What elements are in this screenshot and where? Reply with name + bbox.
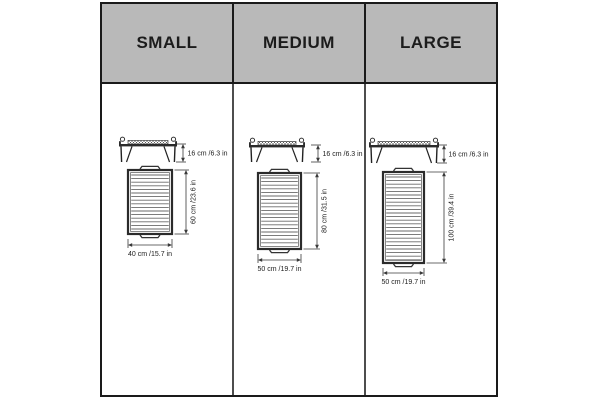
medium-grill-diagram: 16 cm /6.3 in80 cm /31.5 in50 cm /19.7 i…	[234, 84, 365, 395]
handle-bottom	[140, 235, 160, 238]
side-view	[369, 138, 439, 163]
width-dimension-label: 50 cm /19.7 in	[258, 266, 302, 273]
large-grill-diagram: 16 cm /6.3 in100 cm /39.4 in50 cm /19.7 …	[366, 84, 491, 395]
length-dimension: 80 cm /31.5 in	[304, 173, 329, 249]
length-dimension-label: 80 cm /31.5 in	[322, 189, 329, 233]
size-label-medium: MEDIUM	[263, 33, 335, 53]
top-view	[258, 169, 301, 252]
small-grill-diagram: 16 cm /6.3 in60 cm /23.6 in40 cm /15.7 i…	[102, 84, 233, 395]
height-dimension-label: 16 cm /6.3 in	[323, 151, 363, 158]
width-dimension-label: 40 cm /15.7 in	[128, 251, 172, 258]
size-table: SMALL MEDIUM LARGE 16 cm /6.3 in60 cm /2…	[100, 2, 498, 397]
header-cell-small: SMALL	[102, 4, 232, 82]
size-comparison-chart: SMALL MEDIUM LARGE 16 cm /6.3 in60 cm /2…	[0, 0, 600, 400]
height-dimension: 16 cm /6.3 in	[437, 145, 489, 163]
column-medium: 16 cm /6.3 in80 cm /31.5 in50 cm /19.7 i…	[232, 84, 364, 395]
size-label-small: SMALL	[136, 33, 197, 53]
header-cell-large: LARGE	[364, 4, 496, 82]
height-dimension-label: 16 cm /6.3 in	[188, 151, 228, 158]
header-cell-medium: MEDIUM	[232, 4, 364, 82]
side-view	[249, 138, 305, 162]
size-label-large: LARGE	[400, 33, 462, 53]
column-large: 16 cm /6.3 in100 cm /39.4 in50 cm /19.7 …	[364, 84, 496, 395]
top-view	[383, 168, 424, 266]
top-view	[128, 166, 172, 237]
width-dimension: 50 cm /19.7 in	[382, 268, 426, 286]
grate-mesh	[378, 141, 430, 145]
grate-mesh	[258, 141, 296, 145]
side-view	[119, 137, 177, 162]
height-dimension: 16 cm /6.3 in	[311, 145, 363, 162]
height-dimension: 16 cm /6.3 in	[176, 144, 228, 162]
height-dimension-label: 16 cm /6.3 in	[449, 152, 489, 159]
width-dimension: 50 cm /19.7 in	[258, 254, 302, 273]
length-dimension-label: 60 cm /23.6 in	[191, 180, 198, 224]
handle-bottom	[394, 264, 414, 267]
handle-bottom	[270, 250, 290, 253]
length-dimension: 100 cm /39.4 in	[427, 172, 456, 263]
column-small: 16 cm /6.3 in60 cm /23.6 in40 cm /15.7 i…	[102, 84, 232, 395]
length-dimension: 60 cm /23.6 in	[175, 170, 198, 234]
handle-top	[140, 166, 160, 169]
width-dimension-label: 50 cm /19.7 in	[382, 279, 426, 286]
table-header: SMALL MEDIUM LARGE	[102, 4, 496, 84]
handle-top	[394, 168, 414, 171]
grate-mesh	[128, 140, 168, 144]
table-body: 16 cm /6.3 in60 cm /23.6 in40 cm /15.7 i…	[102, 84, 496, 395]
width-dimension: 40 cm /15.7 in	[128, 239, 172, 258]
length-dimension-label: 100 cm /39.4 in	[449, 193, 456, 241]
handle-top	[270, 169, 290, 172]
